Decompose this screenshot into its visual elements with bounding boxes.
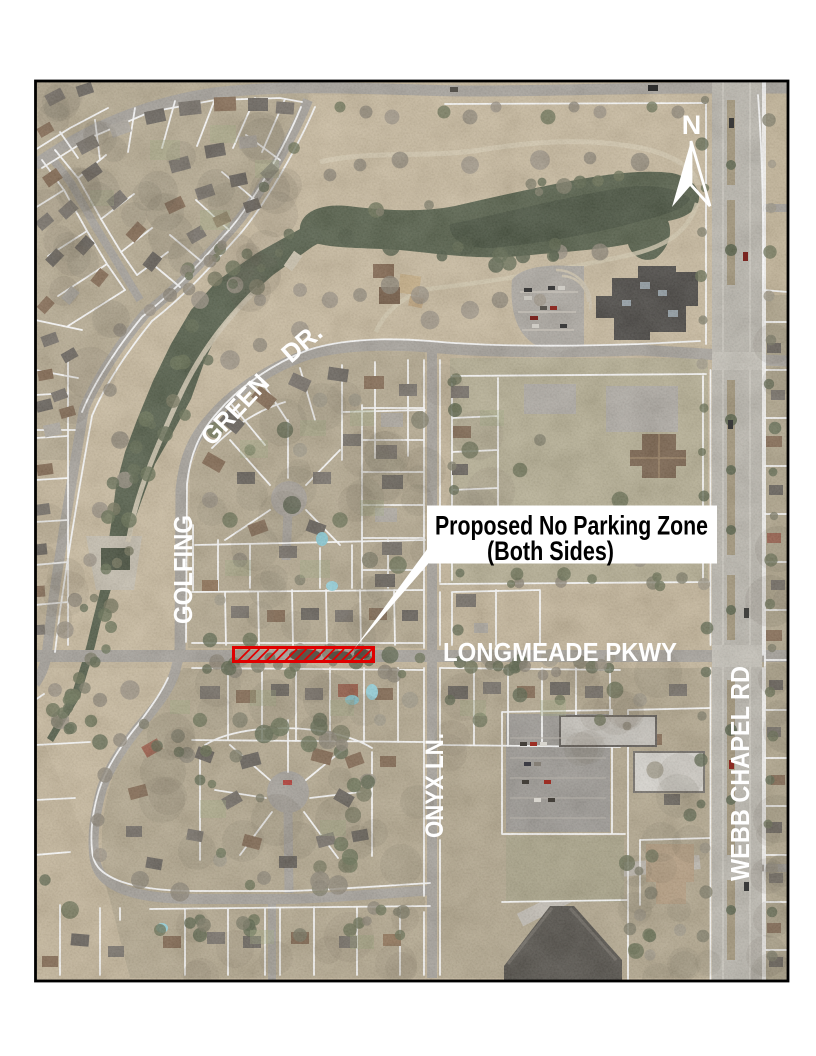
svg-text:GOLFING: GOLFING	[168, 515, 198, 624]
svg-text:N: N	[682, 110, 702, 140]
svg-text:LN.: LN.	[421, 733, 449, 769]
svg-text:LONGMEADE PKWY: LONGMEADE PKWY	[443, 637, 677, 667]
svg-text:WEBB CHAPEL RD: WEBB CHAPEL RD	[725, 666, 755, 881]
svg-text:(Both Sides): (Both Sides)	[487, 536, 614, 566]
svg-text:ONYX: ONYX	[421, 775, 449, 838]
